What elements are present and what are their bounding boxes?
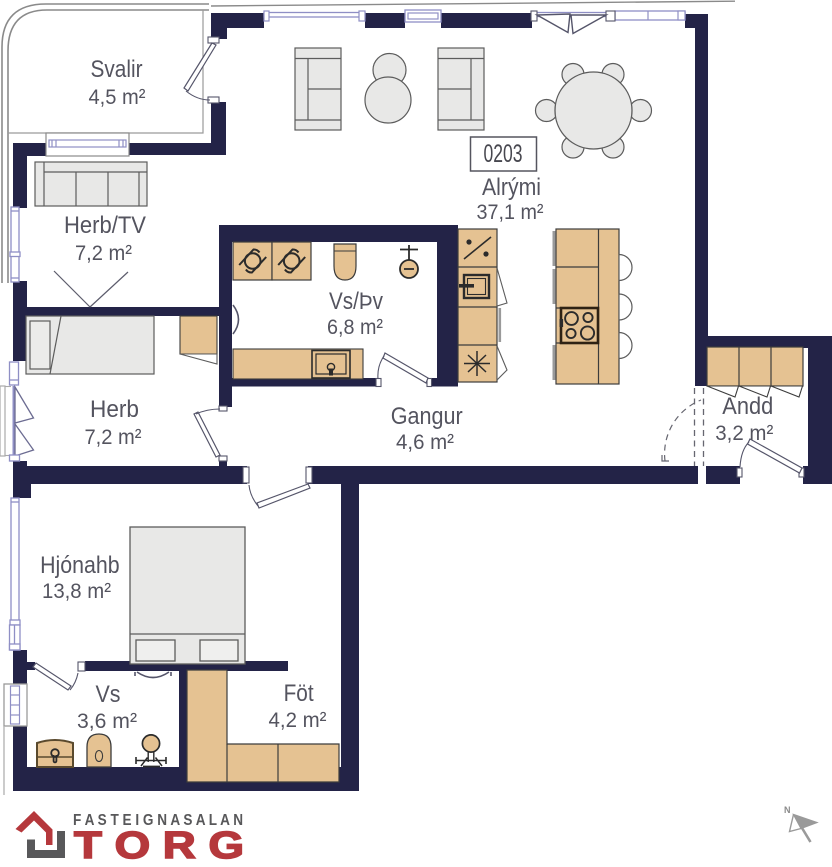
svg-text:Gangur: Gangur (391, 403, 463, 430)
svg-text:37,1 m²: 37,1 m² (477, 200, 544, 224)
svg-text:Svalir: Svalir (91, 56, 143, 83)
svg-text:3,6 m²: 3,6 m² (77, 709, 137, 733)
svg-text:7,2 m²: 7,2 m² (85, 425, 142, 449)
svg-text:3,2 m²: 3,2 m² (715, 421, 773, 445)
svg-text:Alrými: Alrými (482, 174, 541, 201)
svg-text:0203: 0203 (484, 140, 523, 168)
svg-text:7,2 m²: 7,2 m² (75, 241, 132, 265)
svg-text:Hjónahb: Hjónahb (40, 552, 120, 579)
svg-text:Vs: Vs (96, 681, 121, 708)
svg-text:13,8 m²: 13,8 m² (42, 579, 111, 603)
svg-text:N: N (784, 805, 791, 815)
svg-text:4,2 m²: 4,2 m² (269, 708, 327, 732)
svg-text:Föt: Föt (284, 680, 314, 707)
svg-text:T O R G: T O R G (74, 825, 244, 867)
svg-text:Vs/Þv: Vs/Þv (329, 288, 383, 315)
svg-text:Herb/TV: Herb/TV (64, 212, 146, 239)
svg-text:Andd: Andd (722, 393, 773, 420)
svg-text:4,6 m²: 4,6 m² (396, 430, 454, 454)
svg-text:Herb: Herb (90, 396, 139, 423)
svg-text:6,8 m²: 6,8 m² (327, 315, 383, 339)
svg-text:4,5 m²: 4,5 m² (89, 85, 146, 109)
